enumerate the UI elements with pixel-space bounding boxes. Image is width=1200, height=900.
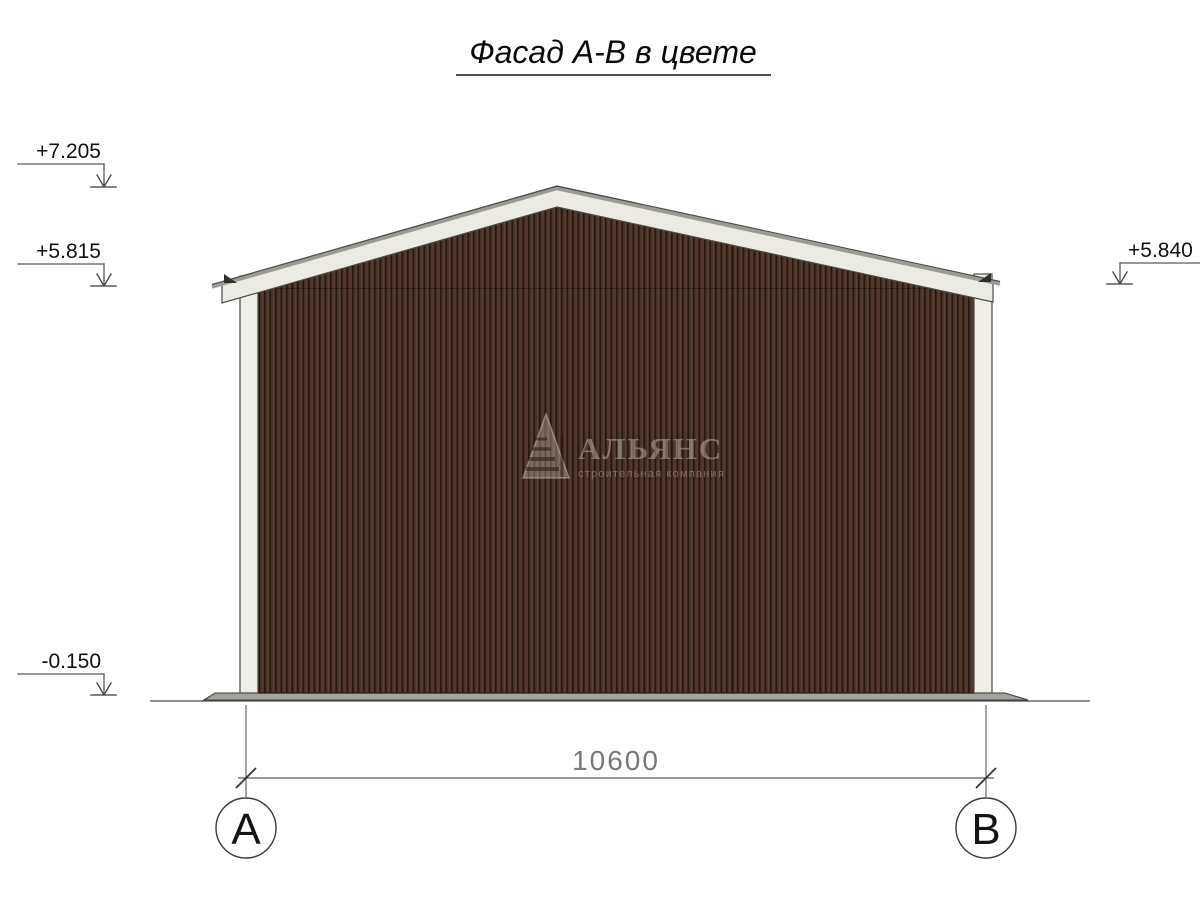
elevation-mark-ground: -0.150 (18, 650, 116, 695)
elevation-value-eave-right: +5.840 (1128, 239, 1193, 262)
axis-bubble-b: В (956, 798, 1016, 858)
dimension-line-group: 10600 (236, 705, 996, 797)
watermark-company-name: АЛЬЯНС (578, 431, 723, 466)
dimension-value: 10600 (572, 745, 660, 776)
drawing-title: Фасад А-В в цвете (456, 34, 771, 75)
watermark-tagline: строительная компания (578, 468, 725, 480)
elevation-mark-eave-left: +5.815 (18, 240, 116, 286)
elevation-value-ground: -0.150 (41, 650, 101, 673)
base-apron (204, 693, 1028, 700)
axis-label-b: В (971, 805, 1000, 854)
page-title: Фасад А-В в цвете (469, 34, 757, 70)
facade-drawing-page: Фасад А-В в цвете АЛЬЯНС строительная ко… (0, 0, 1200, 900)
elevation-mark-eave-right: +5.840 (1107, 239, 1200, 284)
axis-label-a: А (231, 805, 261, 854)
facade-drawing: Фасад А-В в цвете АЛЬЯНС строительная ко… (0, 0, 1200, 900)
axis-bubble-a: А (216, 798, 276, 858)
left-corner-column (240, 276, 258, 693)
elevation-value-ridge: +7.205 (36, 140, 101, 163)
elevation-mark-ridge: +7.205 (18, 140, 116, 187)
elevation-value-eave-left: +5.815 (36, 240, 101, 263)
right-corner-column (974, 274, 992, 693)
